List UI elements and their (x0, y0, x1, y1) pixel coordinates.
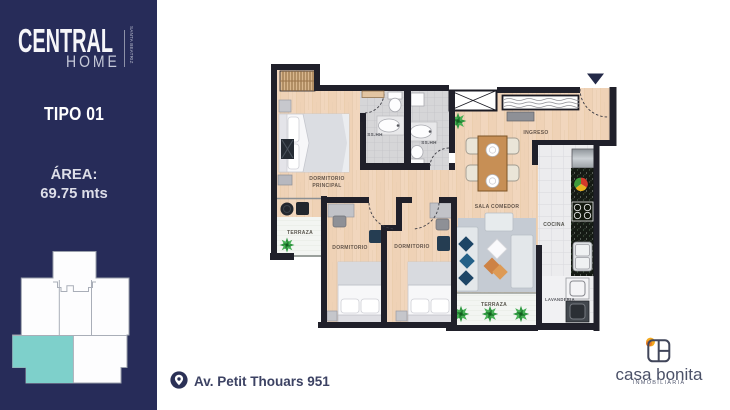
svg-text:COCINA: COCINA (543, 222, 565, 228)
svg-text:SS.HH: SS.HH (421, 140, 437, 145)
svg-text:LAVANDERIA: LAVANDERIA (545, 297, 575, 302)
svg-text:INGRESO: INGRESO (523, 130, 548, 136)
svg-text:SALA COMEDOR: SALA COMEDOR (475, 204, 520, 210)
svg-text:DORMITORIO: DORMITORIO (332, 245, 367, 251)
svg-text:TERRAZA: TERRAZA (287, 230, 313, 236)
svg-text:PRINCIPAL: PRINCIPAL (312, 183, 341, 189)
svg-text:TERRAZA: TERRAZA (481, 302, 507, 308)
svg-text:SS.HH: SS.HH (367, 132, 383, 137)
svg-text:DORMITORIO: DORMITORIO (394, 244, 429, 250)
svg-text:DORMITORIO: DORMITORIO (309, 176, 344, 182)
